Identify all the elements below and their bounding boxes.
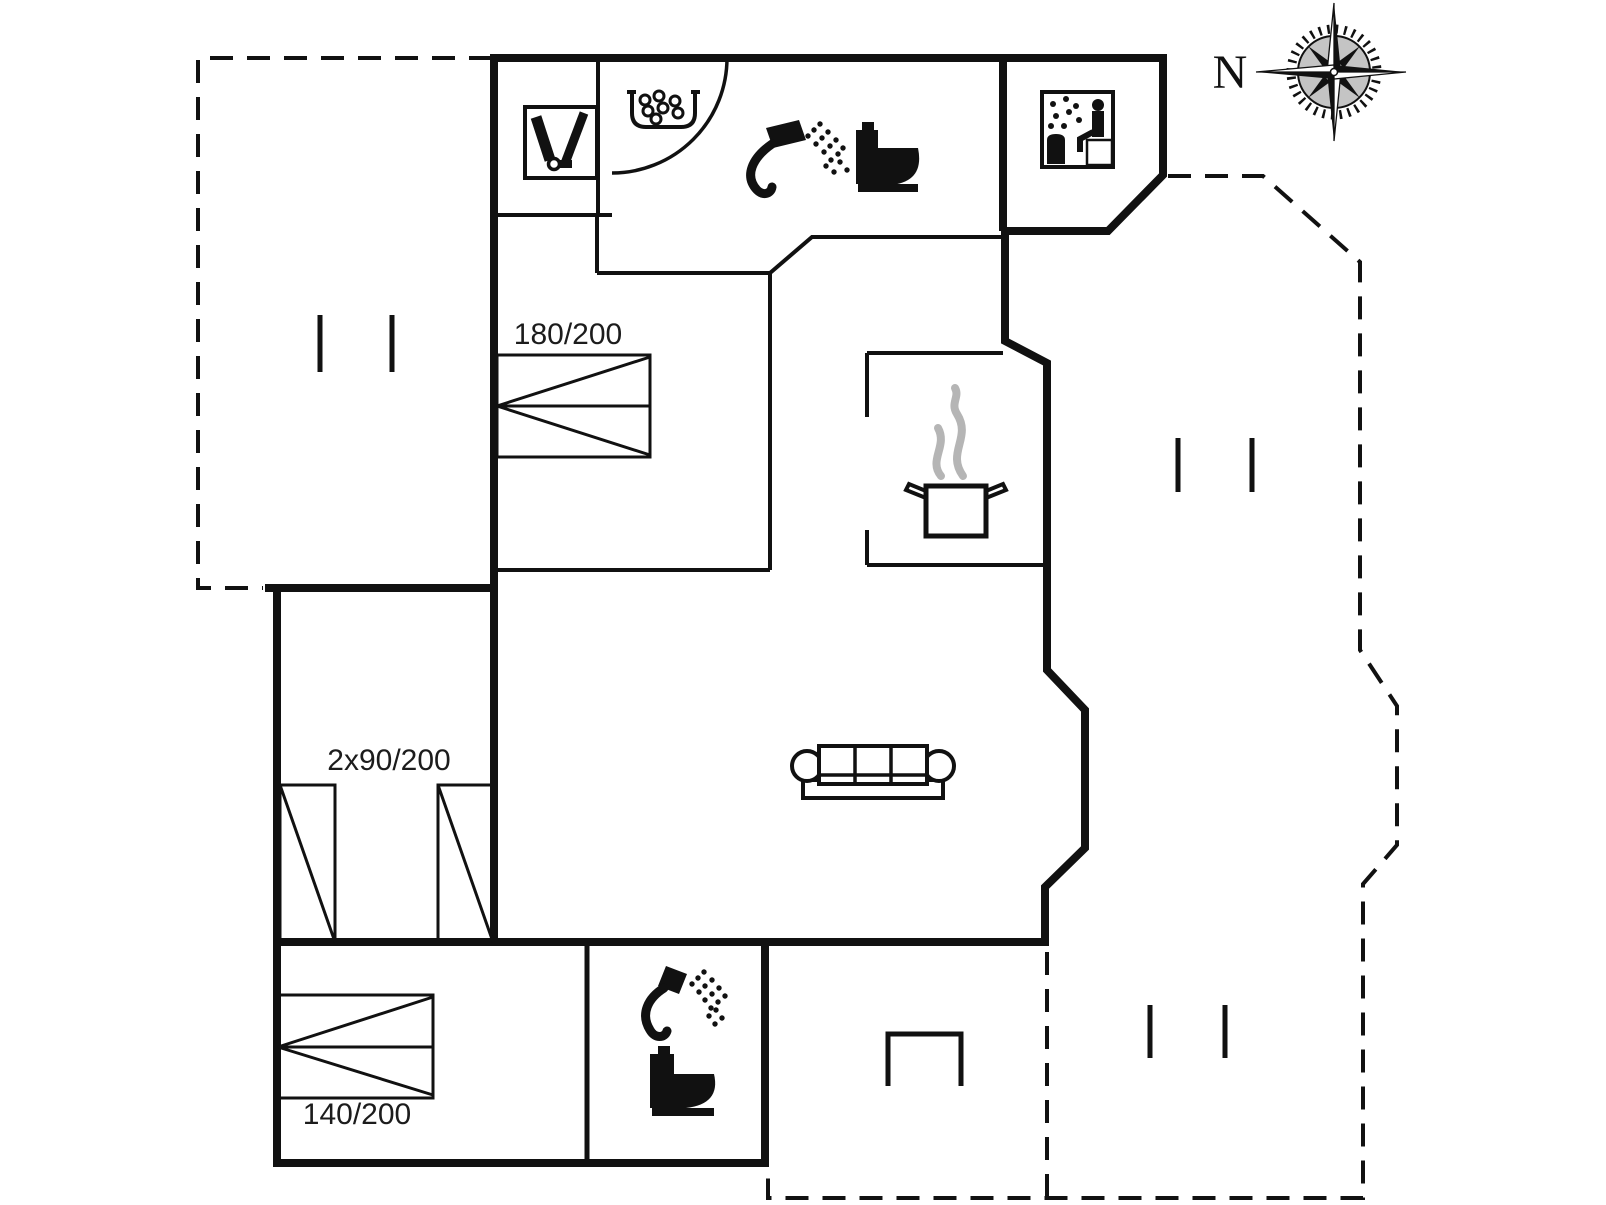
floor-plan-svg: 180/200 2x90/200 140/200 — [0, 0, 1606, 1205]
bed-label-140-200: 140/200 — [303, 1098, 411, 1131]
plan-background — [0, 0, 1606, 1205]
north-label: N — [1213, 46, 1248, 99]
bed-label-180-200: 180/200 — [514, 318, 622, 351]
sofa-icon — [792, 746, 954, 798]
floor-plan-canvas: 180/200 2x90/200 140/200 — [0, 0, 1606, 1205]
bed-label-2x90-200: 2x90/200 — [327, 744, 450, 777]
